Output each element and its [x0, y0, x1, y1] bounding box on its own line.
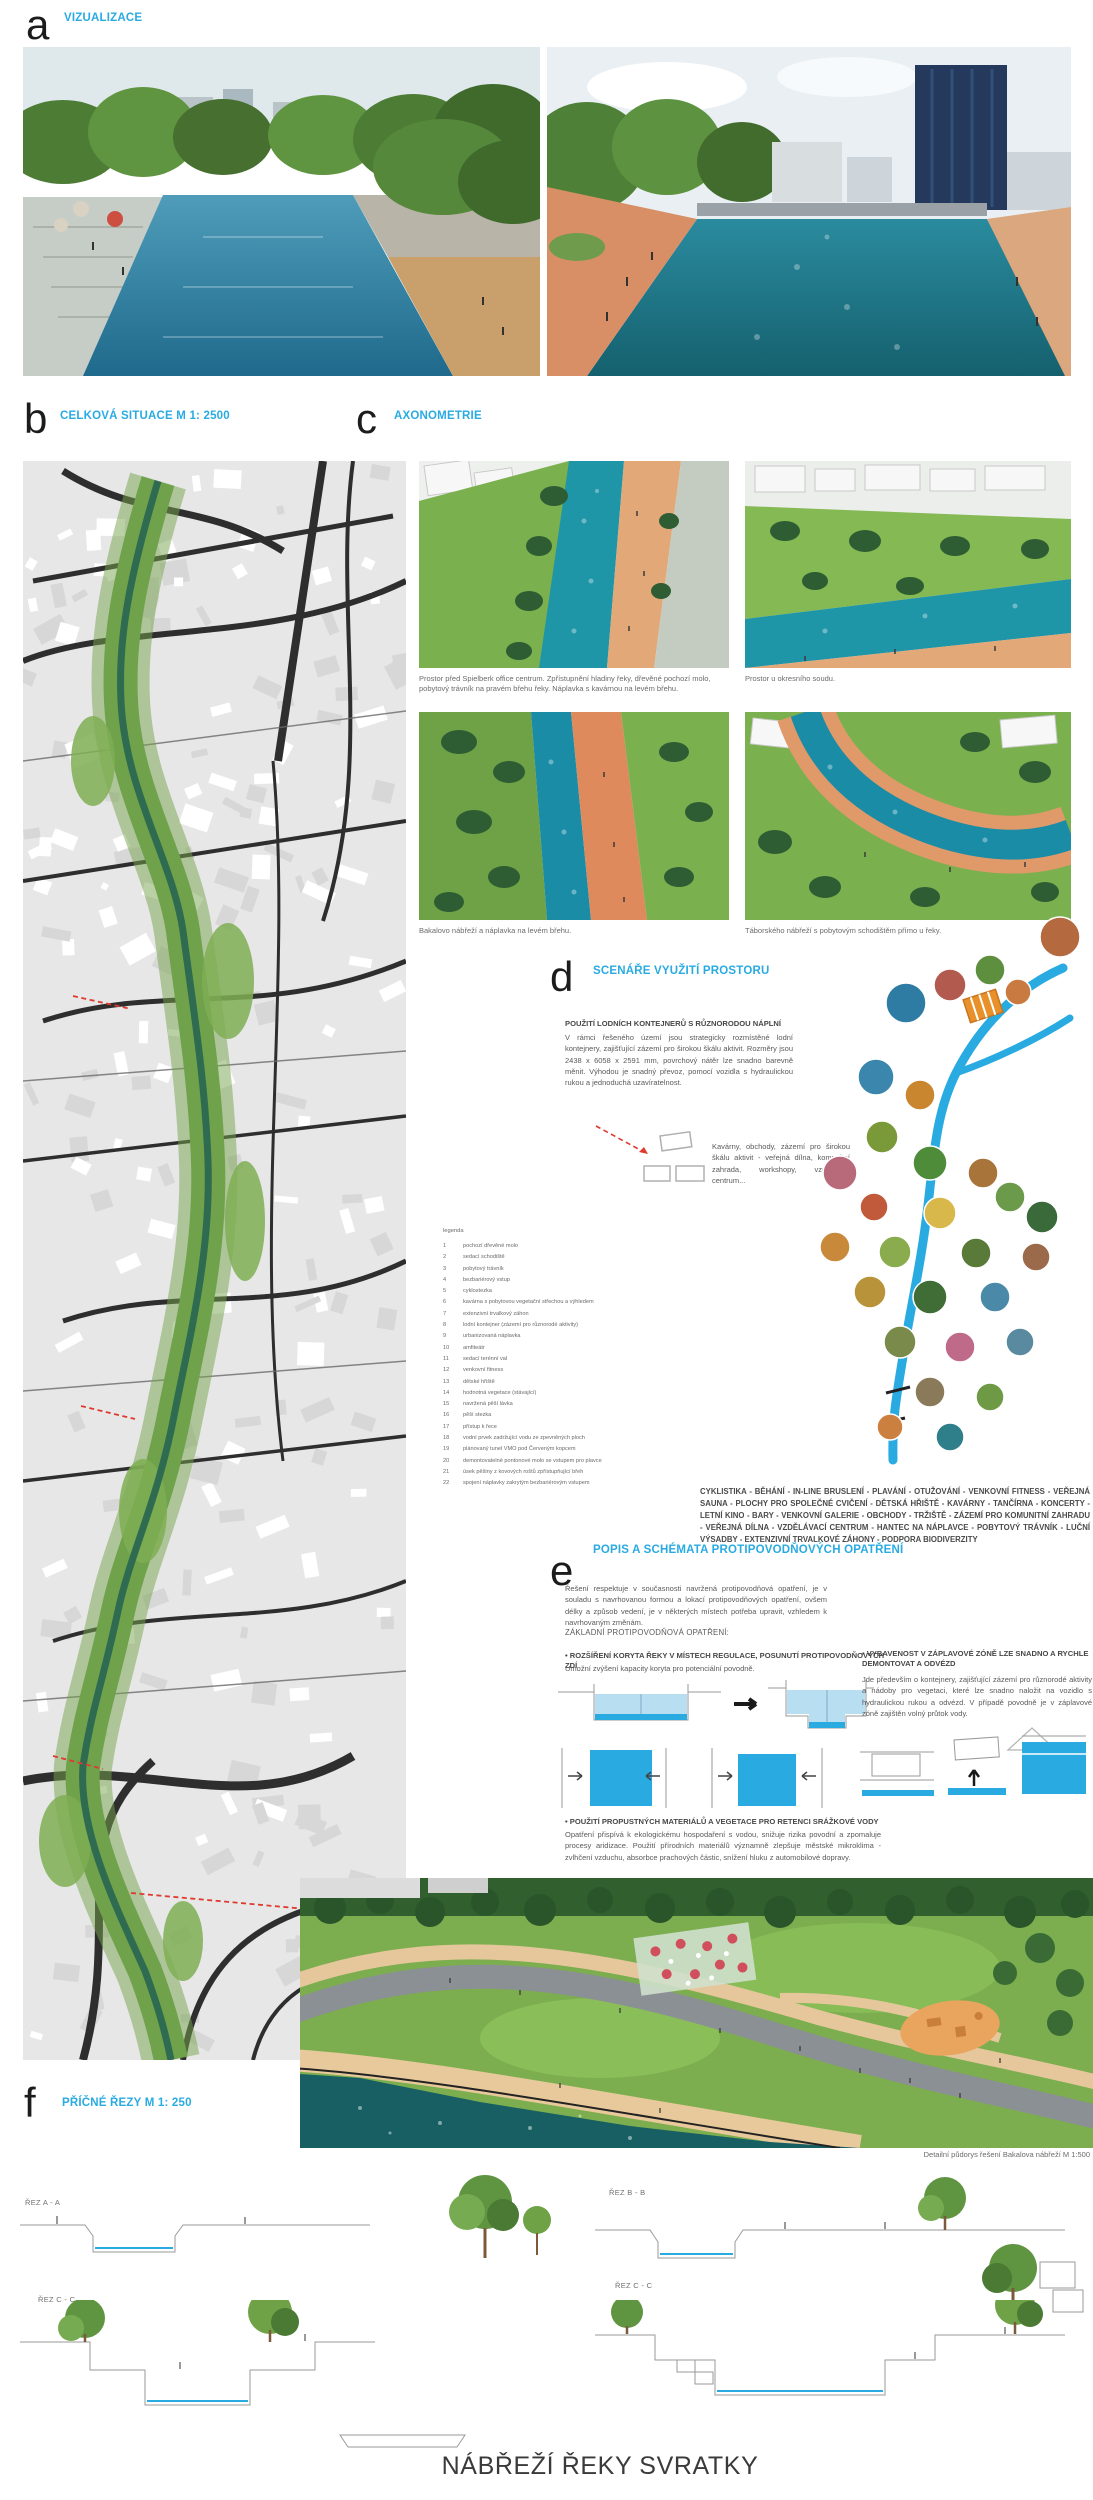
measure-3-heading: POUŽITÍ PROPUSTNÝCH MATERIÁLŮ A VEGETACE… — [565, 1817, 905, 1827]
activity-photo-circle — [820, 1232, 850, 1262]
bridge — [697, 203, 987, 216]
activity-photo-circle — [1005, 979, 1031, 1005]
legend-item: 19plánovaný tunel VMO pod Červeným kopce… — [443, 1446, 618, 1453]
section-letter-c: c — [356, 398, 377, 440]
axonometry-image-4 — [745, 712, 1071, 920]
activity-photo-circle — [976, 1383, 1004, 1411]
legend-item: 10amfiteátr — [443, 1345, 618, 1352]
activity-photo-circle — [945, 1332, 975, 1362]
activity-photo-circle — [968, 1158, 998, 1188]
measure-1-text: Umožní zvýšení kapacity koryta pro poten… — [565, 1663, 865, 1674]
activity-photo-circle — [858, 1059, 894, 1095]
scenarios-paragraph: V rámci řešeného území jsou strategicky … — [565, 1032, 793, 1088]
section-title-flood: POPIS A SCHÉMATA PROTIPOVODŇOVÝCH OPATŘE… — [593, 1544, 903, 1556]
activity-photo-circle — [860, 1193, 888, 1221]
axonometry-image-2 — [745, 461, 1071, 668]
tree-glyph — [449, 2175, 519, 2258]
container-boxes — [644, 1132, 704, 1181]
axonometry-caption-2: Prostor u okresního soudu. — [745, 674, 1065, 684]
axonometry-image-3 — [419, 712, 729, 920]
scenario-diagram — [778, 915, 1080, 1480]
legend-item: 21úsek pěšiny z kovových roštů zpřístupň… — [443, 1469, 618, 1476]
tree-glyph — [523, 2206, 551, 2255]
presentation-board: a VIZUALIZACE — [0, 0, 1093, 2500]
activity-photo-circle — [936, 1423, 964, 1451]
detail-plan-aerial-image — [300, 1878, 1093, 2148]
activity-photo-circle — [854, 1276, 886, 1308]
section-letter-d: d — [550, 956, 573, 998]
legend-item: 20demontovatelné pontonové molo se vstup… — [443, 1458, 618, 1465]
tree-glyph — [611, 2300, 643, 2334]
container-removal-diagram — [856, 1722, 1093, 1807]
legend-item: 13dětské hřiště — [443, 1379, 618, 1386]
measure-2-heading: VYBAVENOST V ZÁPLAVOVÉ ZÓNĚ LZE SNADNO A… — [862, 1649, 1090, 1670]
arrow-icon — [734, 1699, 756, 1709]
activity-photo-circle — [980, 1282, 1010, 1312]
activity-photo-circle — [823, 1156, 857, 1190]
section-letter-a: a — [26, 4, 49, 46]
activity-photo-circle — [913, 1280, 947, 1314]
axonometry-caption-3: Bakalovo nábřeží a náplavka na levém bře… — [419, 926, 719, 936]
legend-item: 7extenzivní trvalkový záhon — [443, 1311, 618, 1318]
activity-photo-circle — [961, 1238, 991, 1268]
section-letter-b: b — [24, 398, 47, 440]
permeable-materials-diagram — [556, 1746, 846, 1812]
section-title-visualizations: VIZUALIZACE — [64, 12, 142, 24]
measure-3-text: Opatření přispívá k ekologickému hospoda… — [565, 1829, 881, 1863]
channel-widening-diagram — [556, 1678, 876, 1744]
legend-item: 1pochozí dřevěné molo — [443, 1243, 618, 1250]
activity-photo-circle — [1022, 1243, 1050, 1271]
activity-photo-circle — [915, 1377, 945, 1407]
activity-photo-circle — [886, 983, 926, 1023]
section-title-masterplan: CELKOVÁ SITUACE M 1: 2500 — [60, 410, 230, 422]
activity-photo-circle — [877, 1414, 903, 1440]
program-list: CYKLISTIKA - BĚHÁNÍ - IN-LINE BRUSLENÍ -… — [700, 1486, 1090, 1546]
legend-item: 12venkovní fitness — [443, 1367, 618, 1374]
section-title-axonometry: AXONOMETRIE — [394, 410, 482, 422]
legend-item: 11sedací terénní val — [443, 1356, 618, 1363]
activity-photo-circle — [1026, 1201, 1058, 1233]
board-title: NÁBŘEŽÍ ŘEKY SVRATKY — [300, 2452, 900, 2481]
legend-item: 17přístup k řece — [443, 1424, 618, 1431]
axonometry-image-1 — [419, 461, 729, 668]
tree-glyph — [918, 2177, 966, 2230]
tree-glyph — [248, 2300, 299, 2342]
legend-item: 4bezbariérový vstup — [443, 1277, 618, 1284]
activity-photo-circle — [975, 955, 1005, 985]
flood-basics-label: ZÁKLADNÍ PROTIPOVODŇOVÁ OPATŘENÍ: — [565, 1628, 729, 1637]
activity-photo-circle — [1006, 1328, 1034, 1356]
masterplan-map — [23, 461, 406, 2060]
activity-photo-circle — [866, 1121, 898, 1153]
legend-item: 8lodní kontejner (zázemí pro různorodé a… — [443, 1322, 618, 1329]
activity-photo-circle — [995, 1182, 1025, 1212]
activity-photo-circle — [913, 1146, 947, 1180]
activity-photo-circle — [905, 1080, 935, 1110]
legend-list: 1pochozí dřevěné molo2sedací schodiště3p… — [443, 1243, 618, 1492]
cross-section-c-right — [585, 2300, 1090, 2450]
activity-photo-circle — [934, 969, 966, 1001]
callout-arrow — [596, 1126, 644, 1152]
legend-item: 15navržená pěší lávka — [443, 1401, 618, 1408]
tree-glyph — [995, 2300, 1043, 2334]
axonometry-caption-1: Prostor před Spielberk office centrum. Z… — [419, 674, 719, 694]
activity-photo-circle — [879, 1236, 911, 1268]
legend-title: legenda — [443, 1228, 464, 1234]
activity-photo-circles — [820, 917, 1080, 1451]
section-title-cross-sections: PŘÍČNÉ ŘEZY M 1: 250 — [62, 2097, 192, 2109]
legend-item: 14hodnotná vegetace (stávající) — [443, 1390, 618, 1397]
section-letter-f: f — [24, 2082, 36, 2124]
section-title-scenarios: SCENÁŘE VYUŽITÍ PROSTORU — [593, 965, 769, 977]
legend-item: 18vodní prvek zadržující vodu ze zpevněn… — [443, 1435, 618, 1442]
measure-2-text: Jde především o kontejnery, zajišťující … — [862, 1674, 1092, 1719]
activity-photo-circle — [884, 1326, 916, 1358]
lift-arrow-icon — [969, 1770, 979, 1786]
legend-item: 2sedací schodiště — [443, 1254, 618, 1261]
legend-item: 6kavárna s pobytovou vegetační střechou … — [443, 1299, 618, 1306]
activity-photo-circle — [924, 1197, 956, 1229]
legend-item: 16pěší stezka — [443, 1412, 618, 1419]
flood-intro: Řešení respektuje v současnosti navržená… — [565, 1583, 827, 1628]
legend-item: 9urbanizovaná náplavka — [443, 1333, 618, 1340]
legend-item: 22spojení náplavky zakrytým bezbariérový… — [443, 1480, 618, 1487]
visualization-image-left — [23, 47, 540, 376]
activity-photo-circle — [1040, 917, 1080, 957]
visualization-image-right — [547, 47, 1071, 376]
legend-item: 5cyklostezka — [443, 1288, 618, 1295]
cross-section-c-left — [15, 2300, 575, 2450]
cross-section-a — [15, 2160, 575, 2280]
legend-item: 3pobytový trávník — [443, 1266, 618, 1273]
tree-glyph — [58, 2300, 105, 2342]
container-callout-diagram — [592, 1108, 707, 1198]
